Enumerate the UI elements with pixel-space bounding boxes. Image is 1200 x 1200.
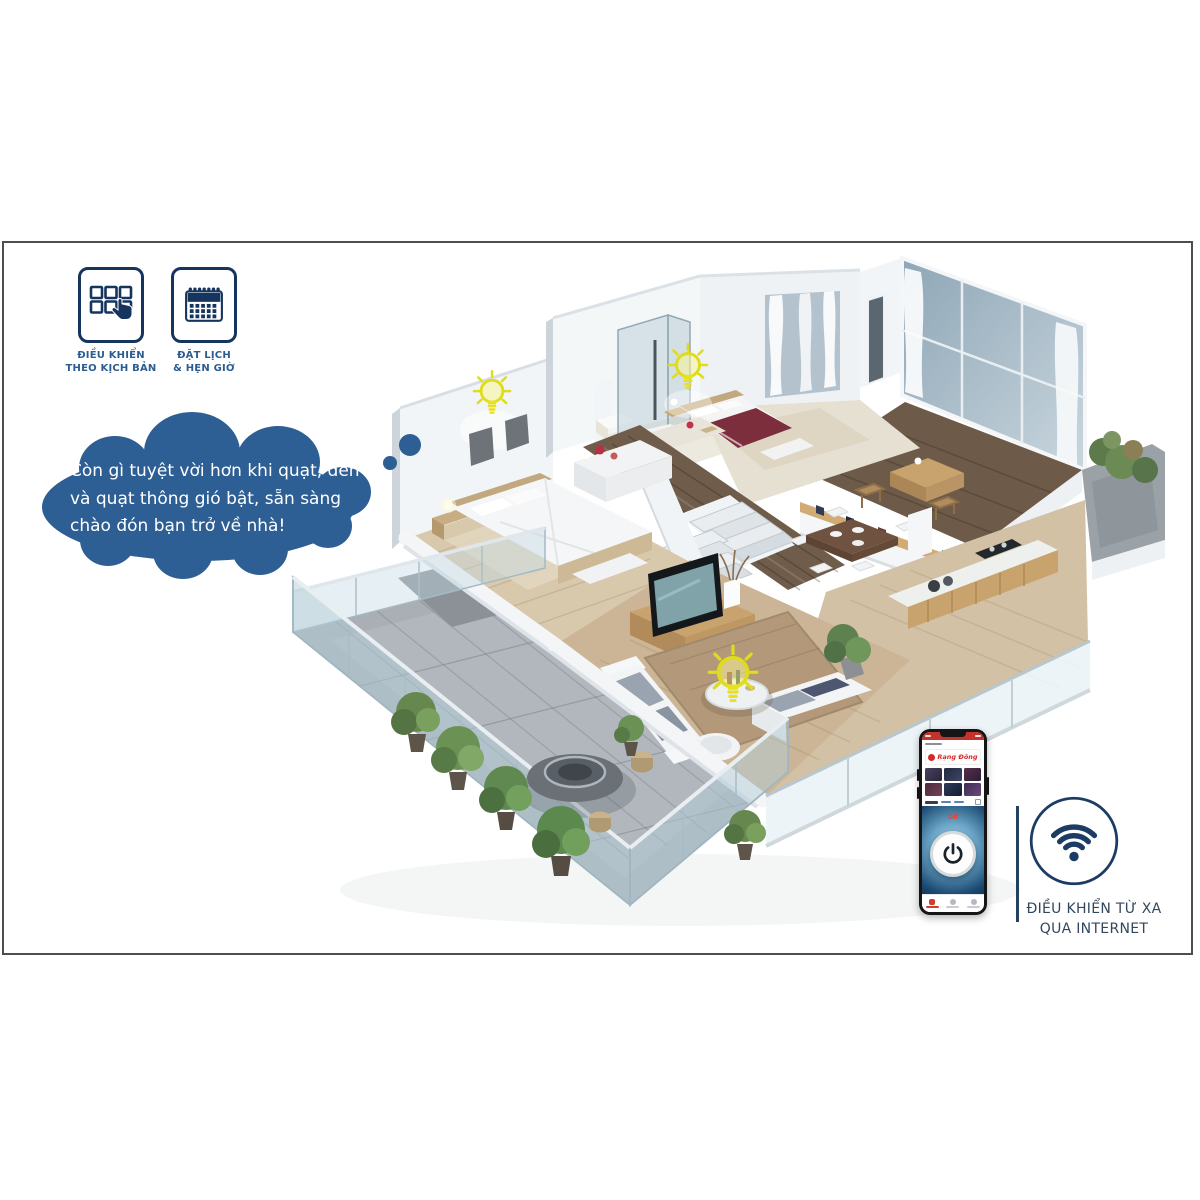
home-icon — [929, 899, 935, 905]
scene-thumbnail — [925, 783, 942, 796]
scene-thumbnail — [944, 783, 961, 796]
thought-dot — [399, 434, 421, 456]
power-icon — [941, 842, 965, 866]
nav-smart-item — [946, 899, 959, 909]
scene-thumbnail — [925, 768, 942, 781]
phone-tab-row — [922, 798, 984, 806]
balcony — [1082, 431, 1165, 580]
house-illustration — [0, 0, 1200, 1200]
vase — [724, 578, 740, 609]
scene-thumbnail — [964, 768, 981, 781]
shower-glass — [618, 315, 668, 444]
phone-app-logo: Rạng Đông — [925, 749, 981, 765]
brand-logo-icon — [928, 754, 935, 761]
thought-dot — [383, 456, 397, 470]
nav-label-bar — [926, 906, 939, 908]
nav-label-bar — [946, 906, 959, 908]
stool — [589, 812, 611, 833]
power-button — [930, 831, 976, 877]
phone-header-text-bar — [925, 743, 942, 746]
tab-active-bar — [925, 801, 938, 804]
curtain — [904, 268, 923, 398]
wifi-icon — [1028, 795, 1120, 887]
feature-scenario-control — [78, 267, 144, 343]
add-icon — [975, 799, 982, 806]
remote-control-badge — [1028, 795, 1120, 887]
scene-thumbnail — [964, 783, 981, 796]
smart-icon — [950, 899, 956, 905]
phone-volume-button — [917, 787, 919, 799]
feature-schedule-label: ĐẶT LỊCH & HẸN GIỜ — [139, 350, 269, 375]
feature-schedule-timer — [171, 267, 237, 343]
infographic-canvas: ĐIỀU KHIỂN THEO KỊCH BẢN ĐẶT LỊCH & HẸN … — [0, 0, 1200, 1200]
profile-icon — [971, 899, 977, 905]
phone-power-side-button — [987, 777, 989, 795]
phone-scene-grid — [922, 766, 984, 798]
narrow-window — [868, 295, 884, 384]
tab-link-bar — [941, 801, 951, 804]
phone-notch — [940, 732, 966, 737]
phone-nav-bar — [922, 894, 984, 912]
phone-screen: Rạng Đông Off — [922, 732, 984, 912]
scene-thumbnail — [944, 768, 961, 781]
phone-header-row — [922, 740, 984, 748]
brand-name: Rạng Đông — [937, 753, 977, 761]
remote-control-label: ĐIỀU KHIỂN TỪ XA QUA INTERNET — [1012, 899, 1176, 939]
curtain — [1055, 322, 1078, 478]
phone-power-panel: Off — [922, 806, 984, 894]
power-state-label: Off — [922, 814, 984, 821]
nav-label-bar — [967, 906, 980, 908]
thought-bubble-text: Còn gì tuyệt vời hơn khi quạt, đèn và qu… — [70, 458, 376, 541]
ground-shadow — [340, 854, 1020, 926]
calendar-icon — [184, 286, 224, 324]
phone-volume-button — [917, 769, 919, 781]
nav-profile-item — [967, 899, 980, 909]
tab-link-bar — [954, 801, 964, 804]
smartphone: Rạng Đông Off — [919, 729, 987, 915]
nav-home-item — [926, 899, 939, 909]
grid-hand-icon — [89, 284, 133, 326]
